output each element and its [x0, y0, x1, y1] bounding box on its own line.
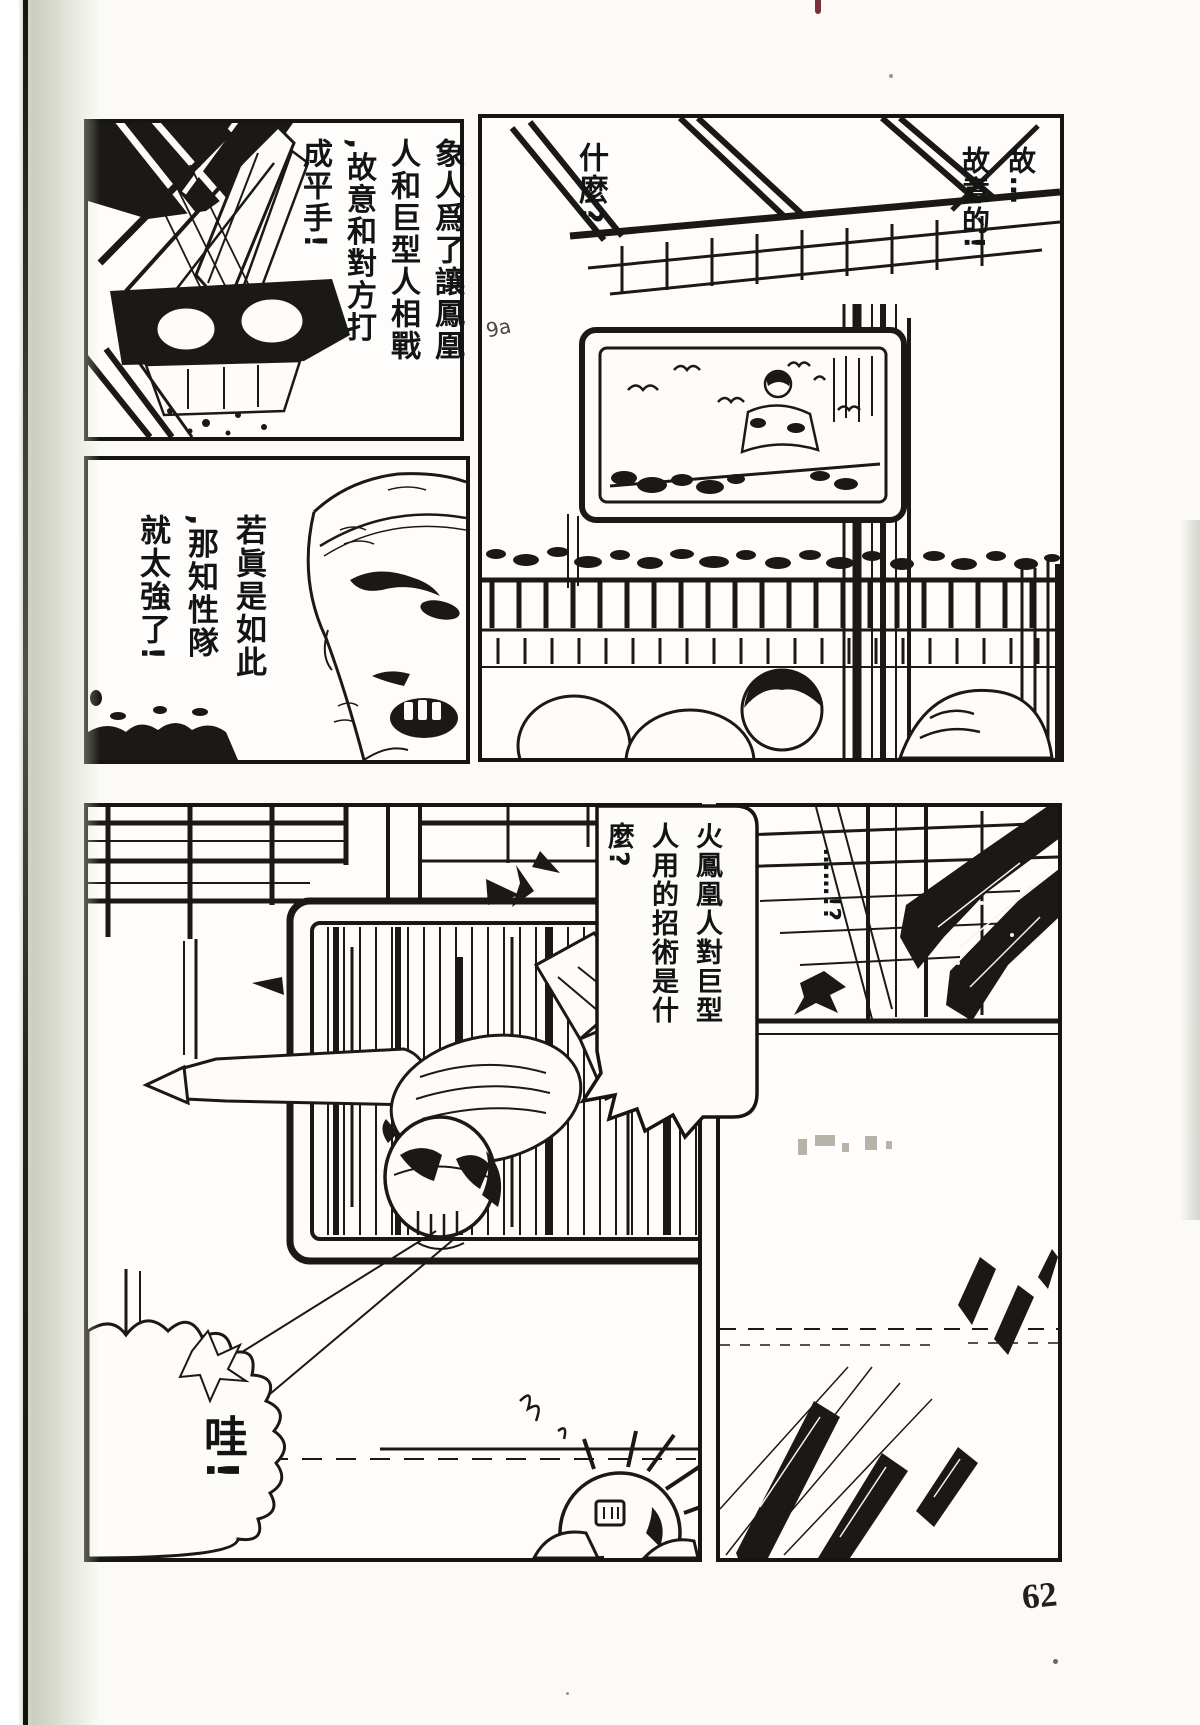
dialogue-deliberate: 故… 故意的!	[951, 146, 1043, 251]
eye	[372, 671, 410, 686]
dialogue-what: 什麼?	[570, 142, 610, 225]
dialogue-elephant-plan: 象人爲了讓鳳凰 人和巨型人相戰 ,故意和對方打 成平手!	[292, 138, 468, 362]
claw-strike-top	[900, 807, 1058, 1021]
dialogue-phoenix-question: 火鳳凰人對巨型 人用的招術是什 麼?	[596, 822, 728, 1025]
faint-marks	[798, 1135, 892, 1155]
feathers-right	[958, 1249, 1058, 1355]
dialogue-if-true: 若眞是如此 ,那知性隊 就太強了!	[128, 514, 272, 679]
page-number: 62	[1020, 1574, 1059, 1617]
scan-speck	[889, 74, 893, 78]
scan-speck	[1053, 1659, 1058, 1664]
eyebrow	[350, 571, 440, 596]
rubble-ground	[88, 723, 238, 760]
scan-speck	[566, 1692, 569, 1695]
jumbotron-screen	[582, 330, 904, 520]
pencil-scribble: 9a	[484, 314, 513, 343]
railing	[482, 580, 1060, 667]
claw-strike-bottom	[736, 1401, 978, 1558]
explosion-cloud	[88, 1321, 285, 1558]
crowd-silhouettes	[518, 670, 1052, 758]
panel-claw-attack	[716, 803, 1062, 1562]
distant-crowd	[486, 547, 1060, 570]
dialogue-shock: ……!?	[816, 848, 846, 922]
flutter-marks	[520, 1396, 565, 1439]
dialogue-wah: 哇!	[196, 1414, 246, 1482]
mouth	[390, 698, 458, 738]
claw-art	[720, 807, 1058, 1558]
red-ink-mark	[815, 0, 821, 14]
page-edge-shadow	[1180, 520, 1200, 1220]
bird-silhouette	[794, 971, 846, 1015]
pointed-fist	[146, 1067, 188, 1103]
manga-page: 故… 故意的! 什麼? 象人爲了讓鳳凰 人和巨型人相戰 ,故意和對方打 成平手!…	[0, 0, 1200, 1725]
onscreen-figure-body	[742, 405, 818, 452]
spine-edge-line	[23, 0, 28, 1725]
